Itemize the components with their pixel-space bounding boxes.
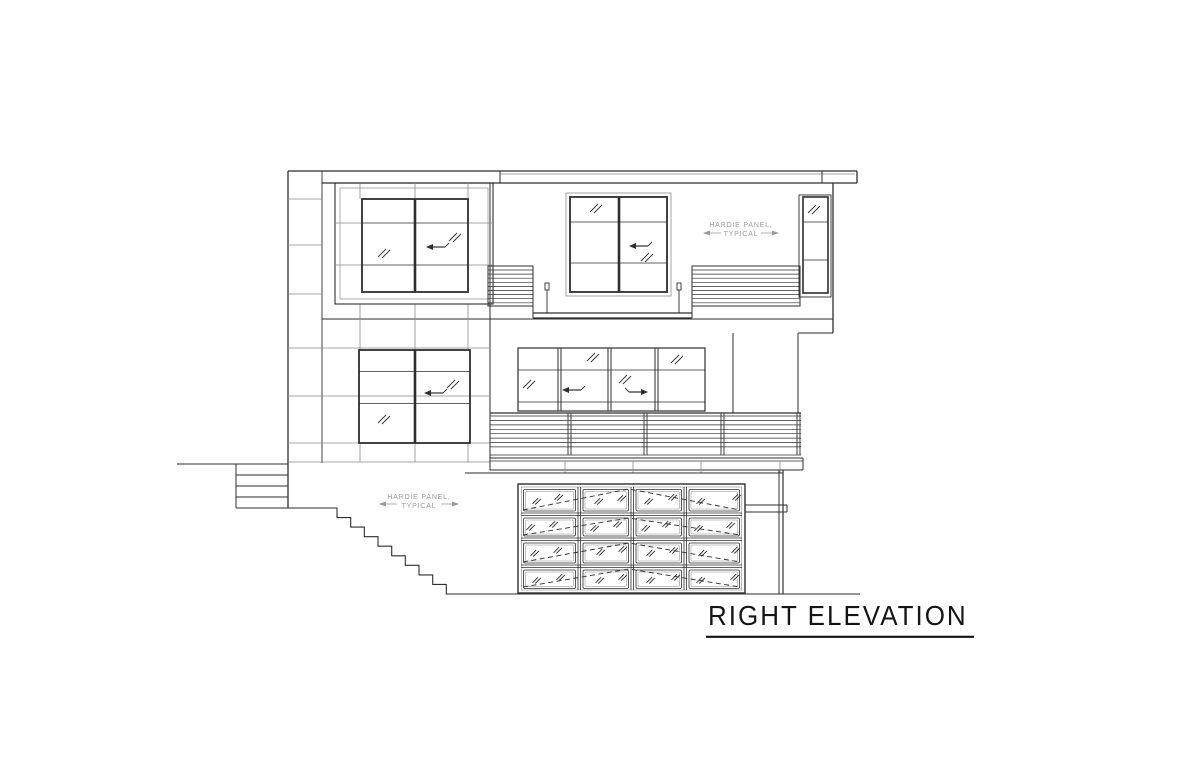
upper-center-window [566,193,671,296]
elevation-drawing: HARDIE PANEL,TYPICALHARDIE PANEL,TYPICAL [0,0,1200,768]
upper-right-window [799,195,831,297]
hardie-note-lower-line1: HARDIE PANEL, [387,494,450,501]
balcony-railing [490,413,803,470]
drawing-title: RIGHT ELEVATION [706,599,974,638]
hardie-note-lower-line2: TYPICAL [402,503,437,510]
wall-grid [288,199,490,462]
garage-side-wall [745,470,787,594]
floor-band [465,458,803,473]
middle-window-band [518,348,705,411]
drawing-sheet: HARDIE PANEL,TYPICALHARDIE PANEL,TYPICAL… [0,0,1200,768]
hardie-note-upper-line2: TYPICAL [724,231,759,238]
upper-louvers [488,266,800,306]
garage-door [518,484,745,593]
upper-left-window [362,199,468,292]
roof [288,171,857,183]
hardie-note-upper-line1: HARDIE PANEL, [709,222,772,229]
hardie-note-upper: HARDIE PANEL,TYPICAL [703,222,779,238]
hardie-note-lower: HARDIE PANEL,TYPICAL [379,494,459,510]
middle-window [359,350,470,443]
upper-deck [533,283,692,318]
